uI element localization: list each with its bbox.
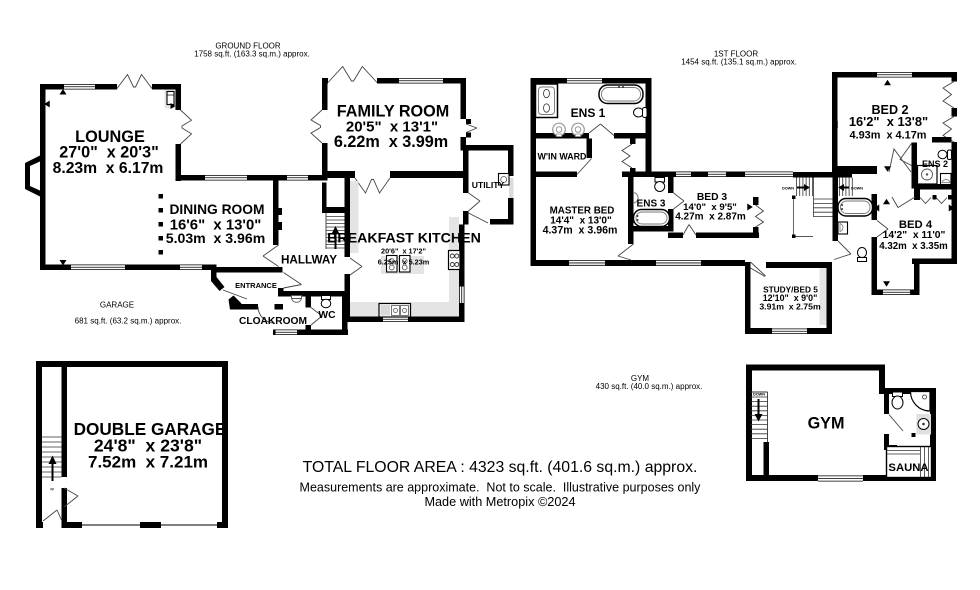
svg-text:HALLWAY: HALLWAY: [281, 254, 337, 267]
svg-text:14'2" x 11'0": 14'2" x 11'0": [883, 230, 946, 241]
svg-text:TOTAL FLOOR AREA : 4323 sq.ft.: TOTAL FLOOR AREA : 4323 sq.ft. (401.6 sq…: [303, 459, 698, 476]
svg-text:5.03m x 3.96m: 5.03m x 3.96m: [166, 230, 266, 246]
svg-text:CLOAKROOM: CLOAKROOM: [239, 316, 307, 327]
svg-text:DOWN: DOWN: [851, 187, 863, 191]
svg-text:ENTRANCE: ENTRANCE: [235, 281, 277, 290]
svg-text:20'6" x 17'2": 20'6" x 17'2": [381, 247, 426, 256]
svg-text:WC: WC: [318, 310, 336, 321]
svg-text:16'2" x 13'8": 16'2" x 13'8": [849, 114, 928, 129]
svg-text:DINING ROOM: DINING ROOM: [169, 202, 264, 217]
svg-text:SAUNA: SAUNA: [888, 462, 928, 474]
svg-text:6.22m x 3.99m: 6.22m x 3.99m: [334, 133, 448, 151]
svg-text:4.37m x 3.96m: 4.37m x 3.96m: [543, 225, 618, 237]
svg-text:27'0" x 20'3": 27'0" x 20'3": [59, 144, 159, 162]
svg-text:W'IN WARD: W'IN WARD: [538, 152, 588, 162]
svg-text:DOWN: DOWN: [753, 393, 765, 397]
svg-text:Made with Metropix ©2024: Made with Metropix ©2024: [424, 495, 575, 509]
svg-text:ENS 3: ENS 3: [637, 199, 666, 210]
svg-text:6.25m x 5.23m: 6.25m x 5.23m: [378, 258, 430, 267]
svg-text:BREAKFAST KITCHEN: BREAKFAST KITCHEN: [327, 231, 481, 247]
svg-text:UTILITY: UTILITY: [472, 180, 505, 190]
svg-text:430 sq.ft. (40.0 sq.m.) approx: 430 sq.ft. (40.0 sq.m.) approx.: [596, 382, 703, 391]
svg-text:GYM: GYM: [808, 415, 845, 433]
svg-text:1454 sq.ft. (135.1 sq.m.) appr: 1454 sq.ft. (135.1 sq.m.) approx.: [681, 57, 797, 66]
svg-text:Measurements are approximate.: Measurements are approximate. Not to sca…: [300, 481, 702, 495]
svg-text:4.27m x 2.87m: 4.27m x 2.87m: [675, 212, 746, 223]
svg-text:4.32m x 3.35m: 4.32m x 3.35m: [879, 241, 948, 252]
svg-text:681 sq.ft. (63.2 sq.m.) approx: 681 sq.ft. (63.2 sq.m.) approx.: [75, 317, 182, 326]
svg-text:1758 sq.ft. (163.3 sq.m.) appr: 1758 sq.ft. (163.3 sq.m.) approx.: [194, 50, 310, 59]
svg-text:ENS 1: ENS 1: [571, 106, 606, 120]
svg-text:8.23m x 6.17m: 8.23m x 6.17m: [53, 160, 164, 177]
svg-text:DOWN: DOWN: [782, 187, 794, 191]
svg-text:GARAGE: GARAGE: [100, 301, 134, 310]
svg-text:up: up: [50, 486, 55, 491]
svg-text:7.52m x 7.21m: 7.52m x 7.21m: [88, 453, 208, 472]
svg-text:3.91m x 2.75m: 3.91m x 2.75m: [759, 302, 821, 312]
svg-text:4.93m x 4.17m: 4.93m x 4.17m: [850, 130, 927, 142]
svg-text:ENS 2: ENS 2: [922, 159, 948, 169]
